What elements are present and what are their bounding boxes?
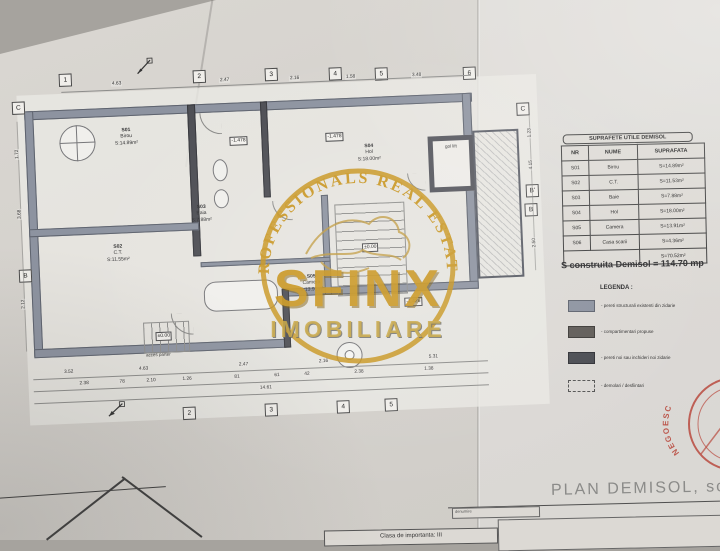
cell-nr: S05 [563, 220, 590, 236]
dim-label: 81 [233, 375, 241, 380]
dim-label-total: 14.61 [259, 385, 273, 391]
cell-nr: S03 [562, 190, 589, 206]
floor-plan-drawing: S01 Birou S:14.89m² S02 C.T. S:11.55m² S… [10, 39, 571, 451]
dim-label: 2.16 [289, 76, 301, 81]
room-label-s02: S02 C.T. S:11.55m² [88, 242, 149, 263]
col-header-suprafata: SUPRAFATA [637, 143, 704, 159]
legend-label: - pereti noi sau inchideri noi zidarie [601, 355, 671, 360]
cell-nr: S01 [562, 160, 589, 176]
room-area: S:18.00m² [358, 155, 381, 162]
col-header-nr: NR [561, 145, 588, 161]
legend-label: - pereti structurali existenti din zidar… [601, 303, 675, 308]
grid-axis-4-bottom: 4 [336, 400, 350, 414]
col-header-nume: NUME [588, 144, 637, 160]
cell-suprafata: S=13.91m² [639, 218, 706, 234]
north-arrow-icon [104, 399, 127, 422]
dim-label: 3.48 [411, 73, 423, 78]
legend-swatch-demolish [568, 380, 595, 392]
cell-nume: Casa scarii [590, 234, 639, 250]
bathtub-symbol [203, 279, 278, 312]
grid-axis-3: 3 [264, 68, 278, 82]
grid-axis-1: 1 [59, 73, 73, 87]
areas-table: NR NUME SUPRAFATA S01 Birou S=14.89m² S0… [561, 143, 708, 267]
areas-table-block: SUPRAFETE UTILE DEMISOL NR NUME SUPRAFAT… [561, 132, 708, 267]
level-marker: -1.426 [404, 297, 423, 307]
grid-axis-5-bottom: 5 [384, 398, 398, 412]
cell-suprafata: S=4.36m² [639, 233, 706, 249]
dim-label: 5.31 [428, 354, 440, 359]
dim-label: 2.50 [532, 237, 537, 249]
dim-label: 2.16 [318, 359, 330, 364]
north-arrow-icon [132, 56, 155, 79]
room-area: S:11.55m² [107, 256, 130, 263]
dim-label: 2.12 [21, 298, 26, 310]
room-area: S:14.89m² [115, 139, 138, 146]
room-label-s03: S03 Baia S:7.88m² [178, 203, 225, 224]
legend-title: LEGENDA : [600, 285, 633, 291]
cell-nume: C.T. [589, 174, 638, 190]
dim-label: 2.38 [78, 381, 90, 386]
dim-label: 2.10 [145, 378, 157, 383]
dim-label: 2.47 [238, 362, 250, 367]
grid-axis-c-left: C [12, 101, 26, 115]
legend-swatch-existing-walls [568, 300, 595, 312]
legend-label: - compartimentari propuse [601, 329, 654, 334]
cell-suprafata: S=18.00m² [639, 203, 706, 219]
cell-nr: S04 [563, 205, 590, 221]
cell-nume: Baie [589, 189, 638, 205]
dim-label: 42 [303, 372, 311, 377]
grid-axis-6: 6 [463, 67, 477, 81]
grid-axis-2-bottom: 2 [183, 407, 197, 421]
cell-suprafata: S=7.88m² [638, 188, 705, 204]
dim-label: 1.26 [181, 377, 193, 382]
denumire-box: denumire [452, 506, 540, 519]
level-marker: ±0.00 [155, 331, 172, 341]
room-area: S:7.88m² [191, 216, 212, 223]
room-area: S:13.91m² [300, 286, 323, 293]
room-label-s01: S01 Birou S:14.89m² [91, 126, 162, 148]
titleblock-box [498, 515, 720, 551]
level-marker: -1.478 [325, 132, 344, 142]
room-label-s05: S05 Camera S:13.91m² [281, 272, 342, 293]
dim-label: 1.23 [527, 127, 532, 139]
legend-swatch-proposed-partitions [568, 326, 595, 338]
dim-label: 4.63 [111, 81, 123, 86]
dim-label: 78 [118, 379, 126, 384]
dim-label: 4.63 [138, 366, 150, 371]
grid-axis-4: 4 [329, 67, 343, 81]
cell-nr: S06 [563, 235, 590, 251]
dim-label: 3.68 [17, 208, 22, 220]
level-marker: ±0.00 [362, 243, 379, 253]
legend-label: - demolari / desfiintari [601, 383, 644, 388]
legend-swatch-new-walls [568, 352, 595, 364]
cell-nume: Hol [590, 204, 639, 220]
cell-nume: Camera [590, 219, 639, 235]
dim-label: 61 [273, 373, 281, 378]
cell-suprafata: S=14.89m² [638, 158, 705, 174]
room-label-s04: S04 Hol S:18.00m² [344, 142, 395, 163]
level-marker: -1.478 [229, 136, 248, 146]
grid-axis-b-left: B [19, 269, 33, 283]
dim-label: 3.52 [63, 370, 75, 375]
cell-suprafata: S=11.53m² [638, 173, 705, 189]
grid-axis-3-bottom: 3 [265, 403, 279, 417]
importance-class-box: Clasa de importanta: III [324, 527, 498, 546]
dim-label: 2.47 [219, 78, 231, 83]
dim-label: 1.58 [345, 75, 357, 80]
dim-label: 2.38 [353, 369, 365, 374]
grid-axis-b-right: B [524, 203, 538, 217]
dim-label: 1.72 [15, 148, 20, 160]
dim-label: 4.15 [529, 159, 534, 171]
drawing-title: PLAN DEMISOL, sc [551, 478, 720, 500]
cell-nume: Birou [589, 159, 638, 175]
cell-nr: S02 [562, 175, 589, 191]
dim-label: 1.38 [423, 366, 435, 371]
grid-axis-2: 2 [193, 70, 207, 84]
annex-room [472, 129, 524, 279]
scanned-floor-plan-page: { "watermark": { "arc_text": "PROFESSION… [0, 0, 720, 540]
